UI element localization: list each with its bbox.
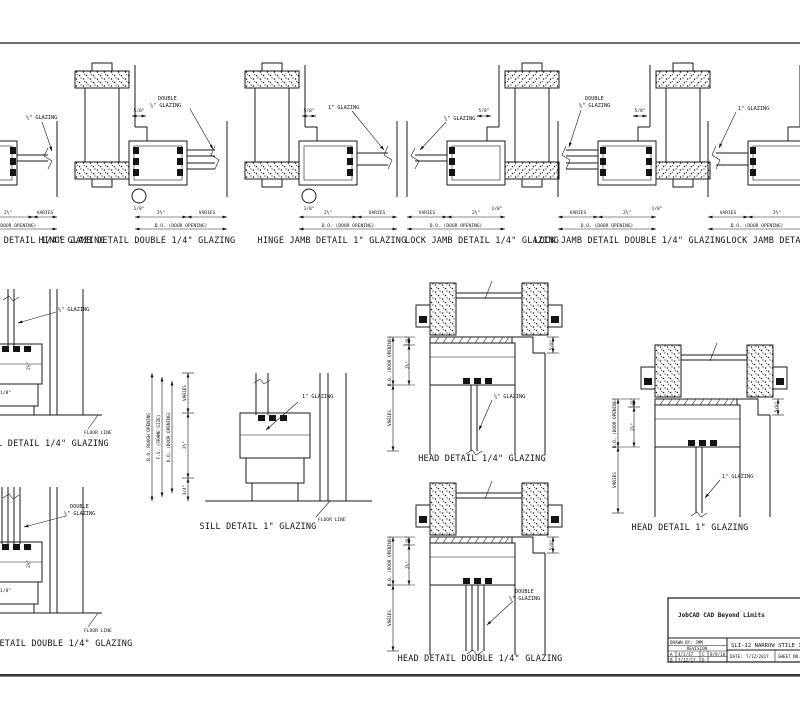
glazing-label-1: DOUBLE bbox=[158, 96, 177, 102]
glazing-label: 1" GLAZING bbox=[738, 106, 769, 112]
dim: 1/8" bbox=[405, 336, 411, 347]
glazing-label-2: ¼" GLAZING bbox=[579, 103, 610, 109]
detail-lock-jamb-quarter: ¼" GLAZING 5/8" 1/8" VARIES 2½" D.O. (DO… bbox=[405, 63, 559, 246]
dim-door-opening: D.O. (DOOR OPENING) bbox=[166, 412, 172, 462]
dim: 5/8" bbox=[549, 340, 555, 351]
dim-varies: VARIES bbox=[37, 210, 54, 216]
dim: 2½" bbox=[773, 209, 781, 216]
dim-rough-opening: R.O. ROUGH OPENING bbox=[146, 413, 152, 461]
dim: 5/8" bbox=[133, 108, 144, 114]
dim-door-opening: D.O. (DOOR OPENING) bbox=[322, 223, 375, 229]
dim-door-opening: D.O. (DOOR OPENING) bbox=[612, 398, 618, 448]
date-value: 7/12/2017 bbox=[746, 654, 769, 659]
dim-door-opening: D.O. (DOOR OPENING) bbox=[430, 223, 483, 229]
dim-varies: VARIES bbox=[720, 210, 737, 216]
rev-b-date: 7/12/17 bbox=[678, 658, 696, 663]
glazing-label: 1" GLAZING bbox=[722, 474, 753, 480]
dim-varies: VARIES bbox=[419, 210, 436, 216]
dim: 1/8" bbox=[303, 206, 314, 212]
title-block: JobCAD CAD Beyond Limits DRAWN BY: JMM R… bbox=[668, 598, 800, 663]
dim: 2½" bbox=[404, 561, 411, 569]
dim-varies: VARIES bbox=[570, 210, 587, 216]
date-label: DATE: bbox=[730, 654, 743, 659]
drawing-sheet: ¼" GLAZING 2½" VARIES D.O. (DOOR OPENING… bbox=[0, 0, 800, 720]
detail-hinge-jamb-double: DOUBLE ¼" GLAZING 5/8" 1/8" 2½" VARIES D… bbox=[39, 63, 236, 246]
revision-label: REVISION bbox=[687, 646, 708, 651]
dim-door-opening: D.O. (DOOR OPENING) bbox=[387, 336, 393, 386]
dim: 5/8" bbox=[549, 540, 555, 551]
dim-door-opening: D.O. (DOOR OPENING) bbox=[155, 223, 208, 229]
glazing-label: ¼" GLAZING bbox=[494, 394, 525, 400]
dim: 2½" bbox=[157, 209, 165, 216]
dim: 5/8" bbox=[478, 108, 489, 114]
detail-head-double: DOUBLE ¼" GLAZING D.O. (DOOR OPENING) VA… bbox=[387, 481, 562, 664]
detail-lock-jamb-one: 1" GLAZING VARIES 2½" D.O. (DOOR OPENING… bbox=[708, 63, 800, 246]
dim: 2½" bbox=[472, 209, 480, 216]
floor-line-label: FLOOR LINE bbox=[84, 430, 112, 436]
detail-sill-double: DOUBLE ¼" GLAZING 2½" 1/8" FLOOR LINE SI… bbox=[0, 487, 132, 649]
dim-varies: VARIES bbox=[387, 610, 393, 626]
glazing-label: ¼" GLAZING bbox=[444, 116, 475, 122]
logo: JobCAD CAD Beyond Limits bbox=[678, 612, 765, 619]
detail-head-one: 1" GLAZING D.O. (DOOR OPENING) VARIES 1/… bbox=[612, 343, 787, 533]
caption: HEAD DETAIL DOUBLE 1/4" GLAZING bbox=[398, 654, 563, 664]
dim-door-opening: D.O. (DOOR OPENING) bbox=[581, 223, 634, 229]
dim-varies: VARIES bbox=[612, 472, 618, 488]
dim: 2½" bbox=[629, 423, 636, 431]
glazing-label-2: ¼" GLAZING bbox=[64, 511, 95, 517]
drawn-by: DRAWN BY: JMM bbox=[670, 640, 703, 645]
drawing-title: SLI-12 NARROW STILE INTERIOR A bbox=[731, 643, 800, 649]
dim: 2½" bbox=[623, 209, 631, 216]
detail-sill-quarter: ¼" GLAZING 2½" 1/8" FLOOR LINE SILL DETA… bbox=[0, 289, 112, 449]
dim-door-opening: D.O. (DOOR OPENING) bbox=[0, 223, 36, 229]
dim-varies: VARIES bbox=[199, 210, 216, 216]
glazing-label: ¼" GLAZING bbox=[26, 115, 57, 121]
dim: 5/8" bbox=[774, 402, 780, 413]
dim: 1/8" bbox=[0, 588, 11, 594]
dim: 2½" bbox=[404, 361, 411, 369]
dim: 1/8" bbox=[405, 536, 411, 547]
dim: 1/8" bbox=[651, 206, 662, 212]
caption: LOCK JAMB DETAIL 1" GLAZING bbox=[726, 236, 800, 246]
dim: 5/8" bbox=[634, 108, 645, 114]
dim-varies: VARIES bbox=[387, 410, 393, 426]
detail-hinge-jamb-one: 1" GLAZING 5/8" 1/8" 2½" VARIES D.O. (DO… bbox=[245, 63, 406, 246]
dim: 2½" bbox=[181, 441, 188, 449]
dim: 2½" bbox=[25, 362, 32, 370]
floor-line-label: FLOOR LINE bbox=[84, 628, 112, 634]
glazing-label-2: ¼" GLAZING bbox=[509, 596, 540, 602]
dim-door-opening: D.O. (DOOR OPENING) bbox=[387, 536, 393, 586]
rev-a-date: 4/3/17 bbox=[678, 652, 694, 657]
caption: SILL DETAIL DOUBLE 1/4" GLAZING bbox=[0, 639, 132, 649]
caption: HINGE JAMB DETAIL DOUBLE 1/4" GLAZING bbox=[39, 236, 236, 246]
detail-lock-jamb-double: DOUBLE ¼" GLAZING 5/8" 1/8" VARIES 2½" D… bbox=[534, 63, 725, 246]
dim-varies: VARIES bbox=[182, 385, 188, 401]
caption: SILL DETAIL 1" GLAZING bbox=[200, 522, 317, 532]
dim: 1/8" bbox=[491, 206, 502, 212]
dim: 2½" bbox=[324, 209, 332, 216]
detail-head-quarter: ¼" GLAZING D.O. (DOOR OPENING) VARIES 1/… bbox=[387, 281, 562, 464]
rev-c-date: 8/9/18 bbox=[710, 652, 726, 657]
caption: HEAD DETAIL 1/4" GLAZING bbox=[418, 454, 546, 464]
dim: 3/4" bbox=[182, 485, 188, 496]
glazing-label: 1" GLAZING bbox=[328, 105, 359, 111]
dim: 2½" bbox=[4, 209, 12, 216]
dim: 5/8" bbox=[303, 108, 314, 114]
dim: 1/8" bbox=[0, 390, 11, 396]
detail-hinge-jamb-quarter: ¼" GLAZING 2½" VARIES D.O. (DOOR OPENING… bbox=[0, 63, 105, 246]
dim-frame-size: F.S. (FRAME SIZE) bbox=[156, 415, 162, 460]
caption: HEAD DETAIL 1" GLAZING bbox=[632, 523, 749, 533]
caption: HINGE JAMB DETAIL 1" GLAZING bbox=[258, 236, 407, 246]
floor-line-label: FLOOR LINE bbox=[318, 517, 346, 523]
dim-door-opening: D.O. (DOOR OPENING) bbox=[731, 223, 784, 229]
caption: LOCK JAMB DETAIL DOUBLE 1/4" GLAZING bbox=[534, 236, 725, 246]
sheet-bottom-border bbox=[0, 674, 800, 677]
glazing-label-1: DOUBLE bbox=[515, 589, 534, 595]
glazing-label: ¼" GLAZING bbox=[58, 307, 89, 313]
dim-varies: VARIES bbox=[369, 210, 386, 216]
glazing-label-2: ¼" GLAZING bbox=[150, 103, 181, 109]
detail-sill-one: 1" GLAZING R.O. ROUGH OPENING F.S. (FRAM… bbox=[146, 373, 372, 532]
caption: SILL DETAIL 1/4" GLAZING bbox=[0, 439, 109, 449]
glazing-label-1: DOUBLE bbox=[585, 96, 604, 102]
glazing-label: 1" GLAZING bbox=[302, 394, 333, 400]
dim: 1/8" bbox=[133, 206, 144, 212]
sheet-no: SHEET NO. 1 bbox=[778, 654, 800, 659]
glazing-label-1: DOUBLE bbox=[70, 504, 89, 510]
dim: 1/8" bbox=[630, 398, 636, 409]
dim: 2½" bbox=[25, 560, 32, 568]
